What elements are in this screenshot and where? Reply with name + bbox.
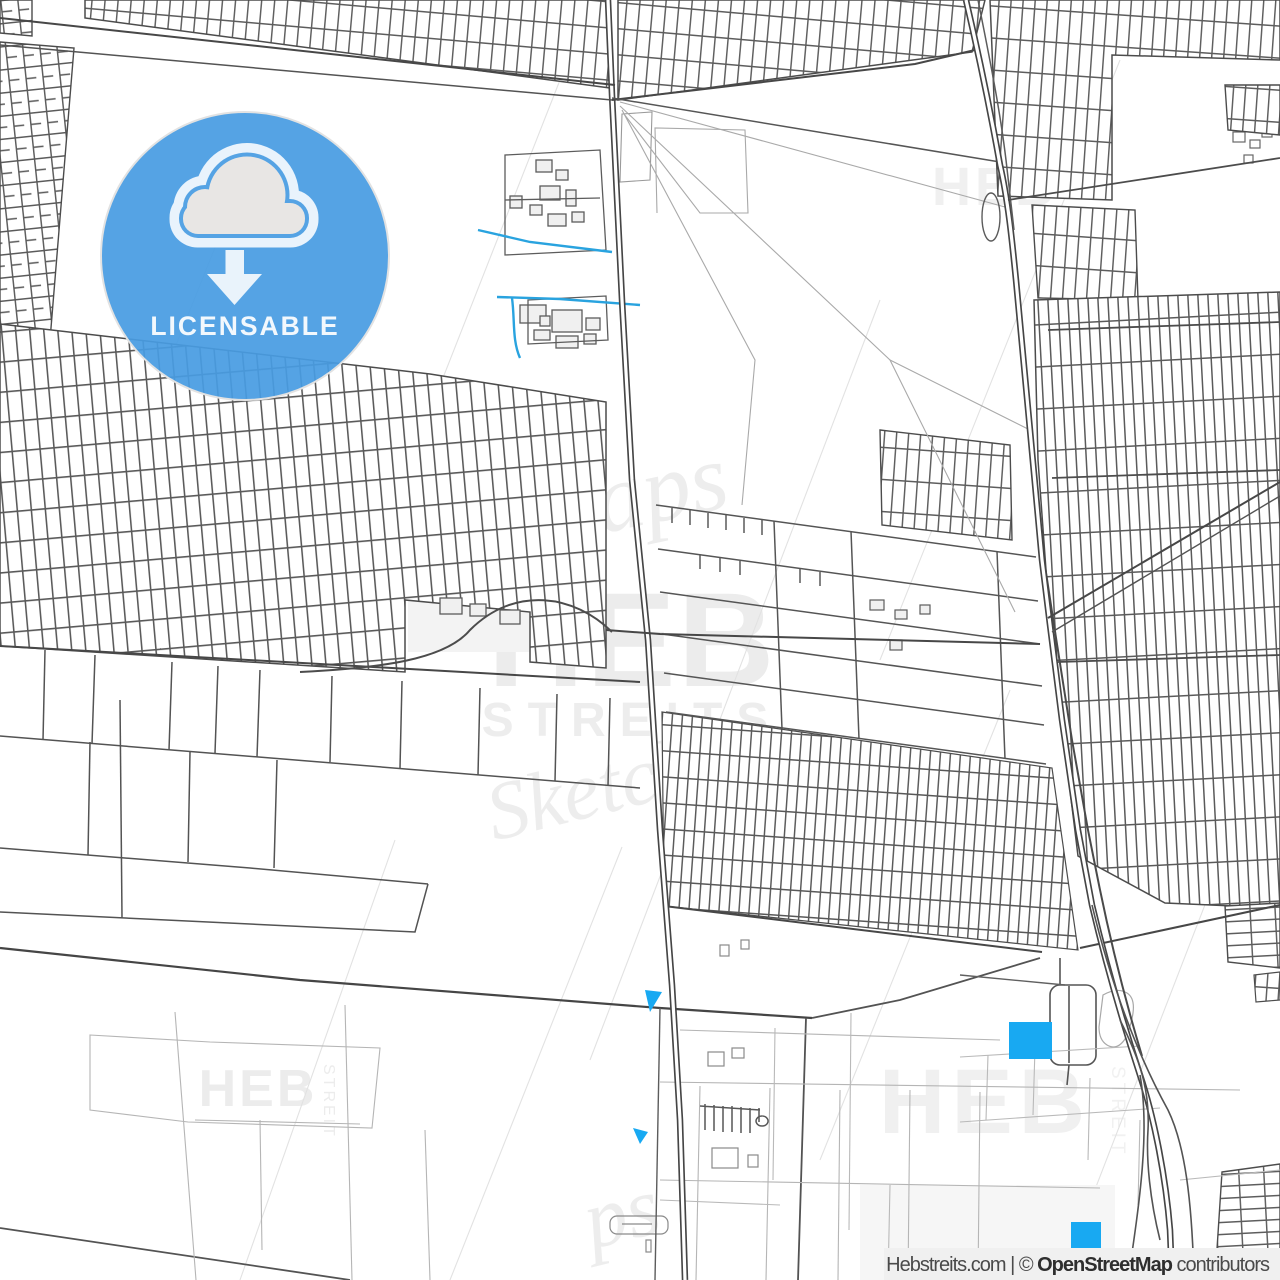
svg-text:Hebstreits.com | © OpenStreetM: Hebstreits.com | © OpenStreetMap contrib… [886,1254,1270,1276]
svg-text:STREIT: STREIT [320,1064,337,1139]
svg-text:LICENSABLE: LICENSABLE [150,311,339,341]
svg-text:HEB: HEB [879,1051,1091,1153]
